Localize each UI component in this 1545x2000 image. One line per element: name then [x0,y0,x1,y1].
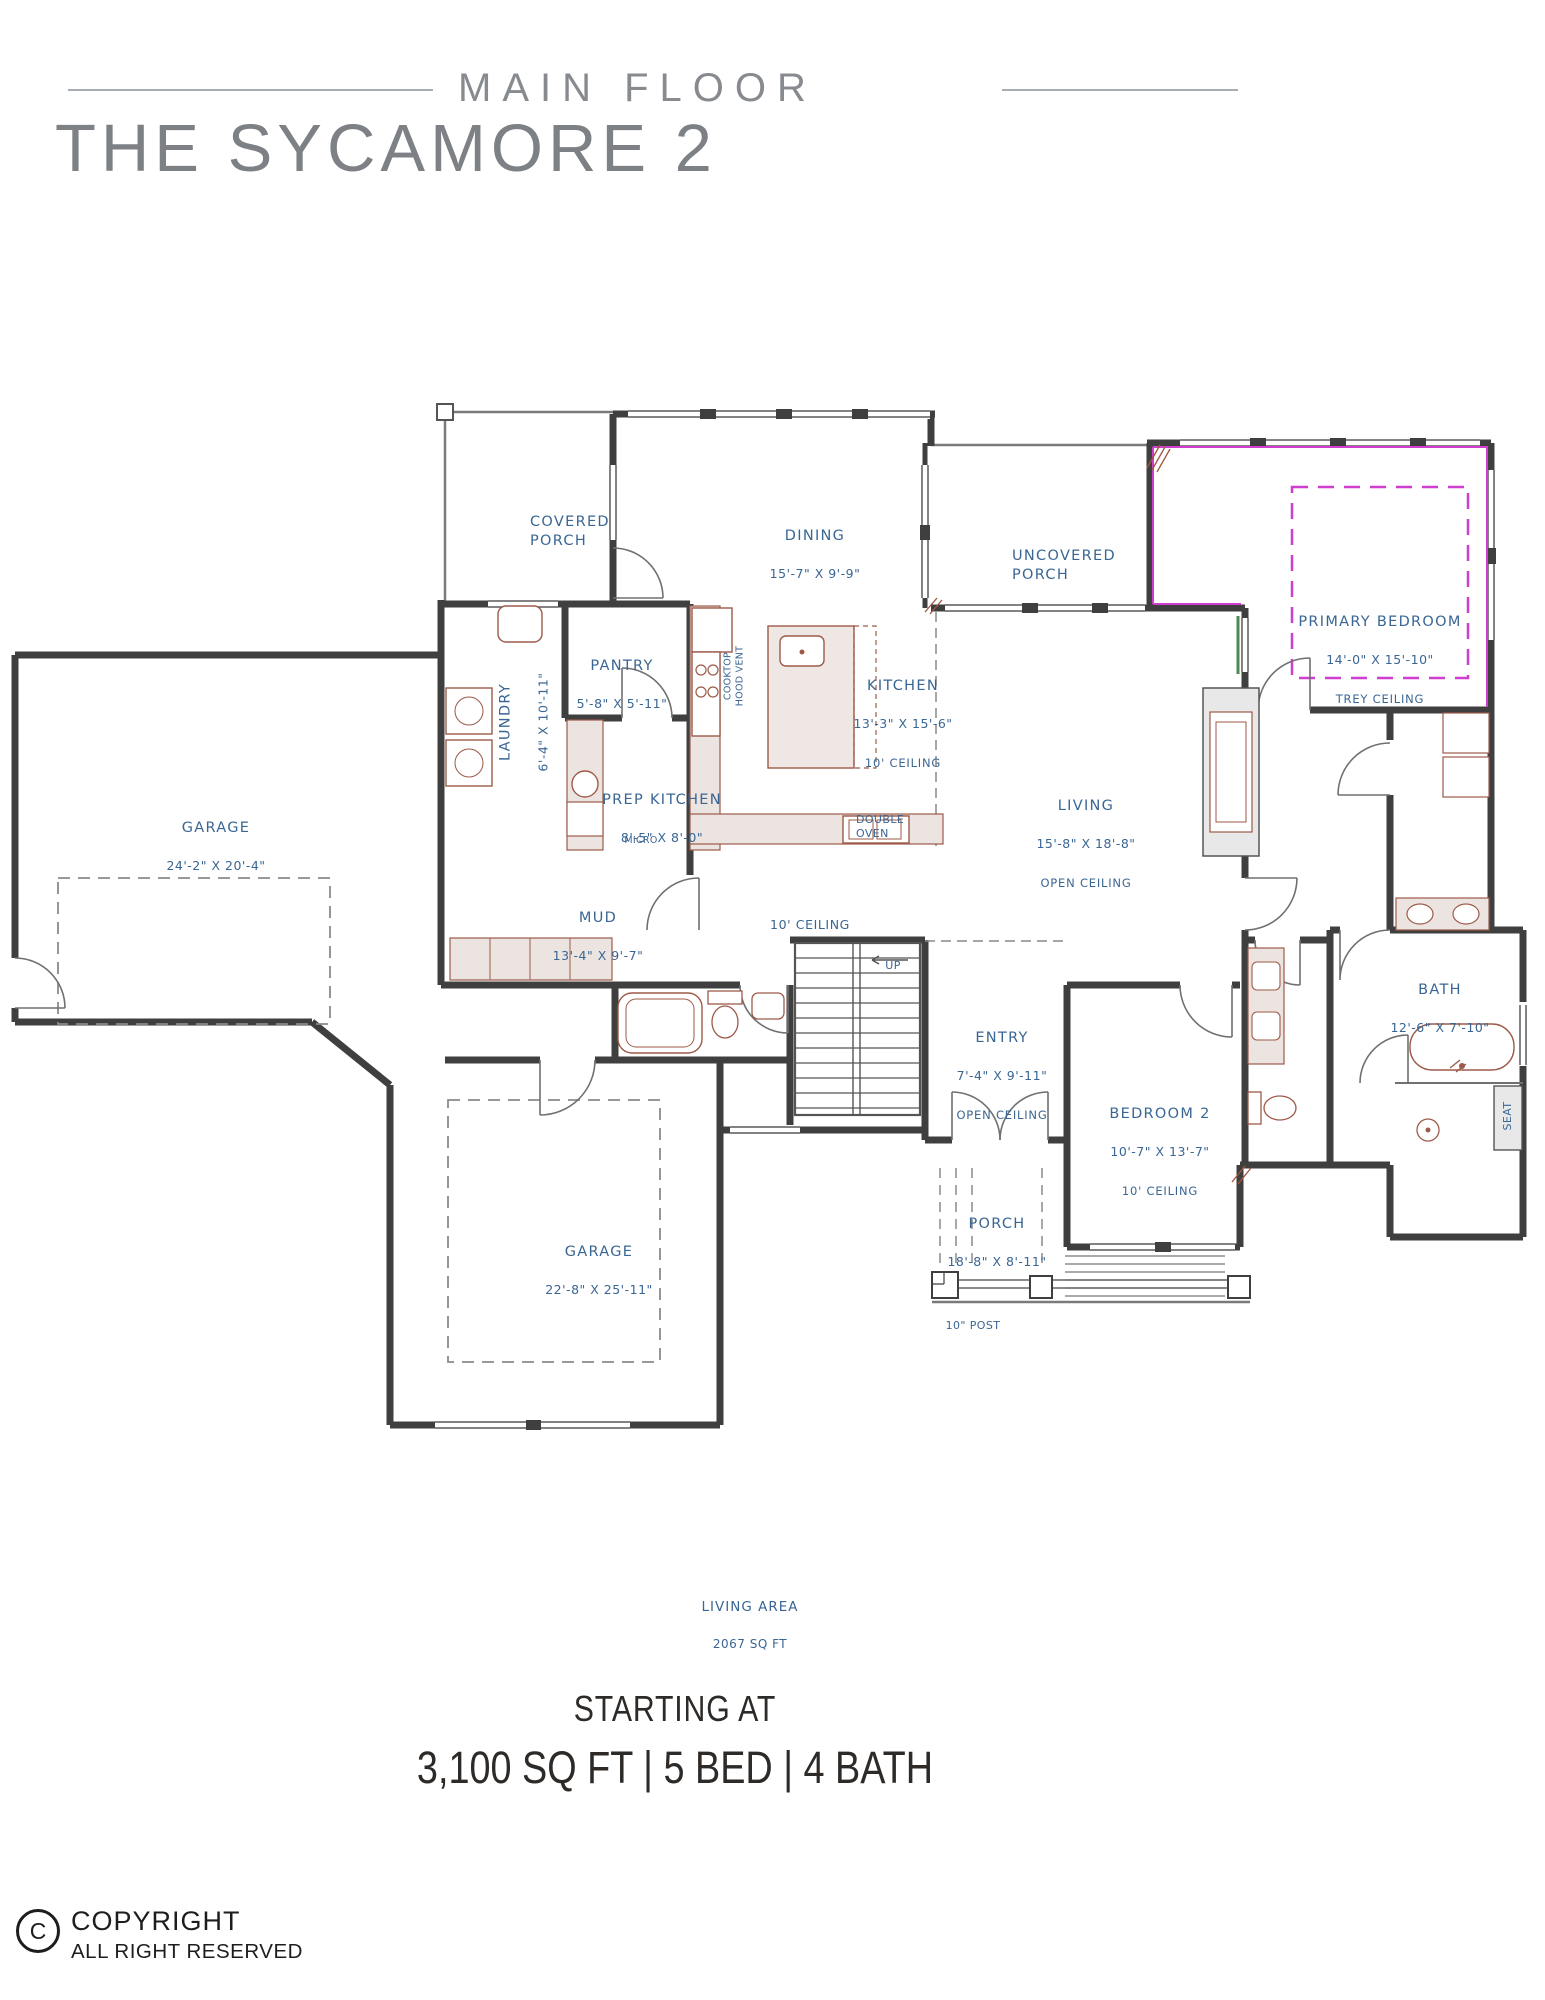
copyright-icon: C [16,1909,60,1953]
annotation-up: UP [885,938,901,994]
laundry-sink [498,606,542,642]
garage1-door-dashed [58,878,330,1024]
floor-plan-sheet: MAIN FLOOR THE SYCAMORE 2 [0,0,1545,2000]
room-label-bath: BATH 12'-6" X 7'-10" [1390,960,1489,1057]
room-label-prep-kitchen: PREP KITCHEN 8'-5" X 8'-0" [602,770,722,867]
room-label-dining: DINING 15'-7" X 9'-9" [770,506,861,603]
room-label-living: LIVING 15'-8" X 18'-8" OPEN CEILING [1036,776,1135,912]
living-area-summary: LIVING AREA 2067 SQ FT [702,1578,799,1674]
toilet-2-tank [708,991,742,1004]
room-label-primary-bedroom: PRIMARY BEDROOM 14'-0" X 15'-10" TREY CE… [1298,592,1461,728]
annotation-hall-ceiling: 10' CEILING [770,896,850,954]
toilet-2-bowl [712,1006,738,1038]
annotation-double-oven: DOUBLE OVEN [856,792,904,862]
room-label-pantry: PANTRY 5'-8" X 5'-11" [577,636,668,733]
room-label-bedroom-2: BEDROOM 2 10'-7" X 13'-7" 10' CEILING [1109,1084,1210,1220]
toilet-1-tank [1248,1092,1261,1124]
porch-post-3 [1228,1276,1250,1298]
copyright-line2: ALL RIGHT RESERVED [71,1940,303,1964]
room-label-kitchen: KITCHEN 13'-3" X 15'-6" 10' CEILING [853,656,952,792]
prep-sink [572,771,598,797]
porch-post-corner [437,404,453,420]
footer: STARTING AT 3,100 SQ FT | 5 BED | 4 BATH [0,1688,1350,1794]
room-label-laundry: LAUNDRY 6'-4" X 10'-11" [475,672,572,771]
room-label-mud: MUD 13'-4" X 9'-7" [553,888,644,985]
copyright-line1: COPYRIGHT [71,1906,303,1937]
deck-hatch [1065,1256,1225,1296]
room-label-uncovered-porch: UNCOVERED PORCH [1012,526,1116,605]
starting-at-text: STARTING AT [108,1688,1242,1730]
wardrobe-2 [1443,757,1489,797]
microwave [567,802,603,836]
room-label-porch: PORCH 18'-8" X 8'-11" [947,1194,1046,1291]
sink-2 [752,993,784,1019]
annotation-micro: MICRO [624,814,657,867]
room-label-covered-porch: COVERED PORCH [530,492,610,571]
annotation-post: 10" POST [946,1298,1001,1354]
annotation-seat: SEAT [1480,1102,1536,1131]
room-label-garage-2: GARAGE 22'-8" X 25'-11" [545,1222,653,1319]
annotation-cooktop-hood-vent: COOKTOP HOOD VENT [701,646,766,707]
room-label-entry: ENTRY 7'-4" X 9'-11" OPEN CEILING [956,1008,1047,1144]
stairs [795,943,920,1115]
specs-text: 3,100 SQ FT | 5 BED | 4 BATH [108,1742,1242,1794]
toilet-1-bowl [1264,1096,1296,1120]
copyright: C COPYRIGHT ALL RIGHT RESERVED [16,1906,303,1964]
tub-2 [618,993,702,1053]
room-label-garage-1: GARAGE 24'-2" X 20'-4" [166,798,265,895]
